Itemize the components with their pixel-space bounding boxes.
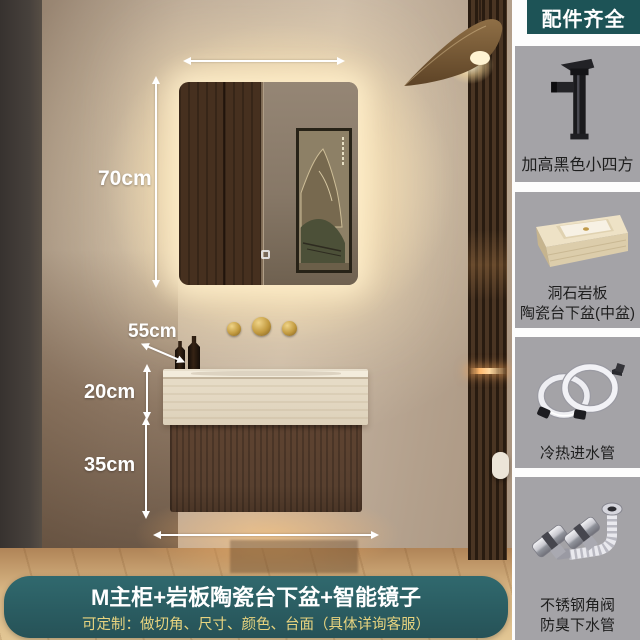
accessories-sidebar: 配件齐全 加高黑色小四方 <box>512 0 640 640</box>
black-faucet-icon <box>515 50 640 156</box>
accessory-label: 陶瓷台下盆(中盆) <box>520 304 635 324</box>
counter-height-arrow <box>146 371 148 413</box>
basin-edge <box>191 371 341 376</box>
accessory-label: 洞石岩板 <box>547 284 607 304</box>
accessory-label: 防臭下水管 <box>540 616 615 636</box>
mirror-height-arrow <box>155 83 157 281</box>
accessory-card-hoses: 冷热进水管 <box>515 337 640 468</box>
accessory-label: 加高黑色小四方 <box>521 156 633 177</box>
angle-valve-drain-icon <box>515 481 640 596</box>
wall-dark-edge <box>0 0 42 640</box>
customization-note: 可定制：做切角、尺寸、颜色、台面（具体详询客服） <box>82 613 430 634</box>
stone-countertop-basin <box>163 369 368 425</box>
accessory-card-basin: 洞石岩板 陶瓷台下盆(中盆) <box>515 192 640 328</box>
stone-basin-icon <box>515 196 640 284</box>
mirror-touch-sensor-icon <box>261 250 270 259</box>
dim-label-cabinet-height: 35cm <box>84 455 135 475</box>
accessory-card-faucet: 加高黑色小四方 <box>515 46 640 182</box>
accessory-card-drain: 不锈钢角阀 防臭下水管 <box>515 477 640 640</box>
faucet-handle-right-icon <box>282 321 297 336</box>
water-hoses-icon <box>515 341 640 444</box>
accessory-label: 不锈钢角阀 <box>540 596 615 616</box>
faucet-spout-icon <box>252 317 271 336</box>
rattan-pendant-lamp-icon <box>402 14 510 92</box>
width-arrow-bottom <box>160 534 372 536</box>
landscape-painting <box>296 128 352 273</box>
bathroom-scene: 70cm 55cm 20cm 35cm <box>0 0 512 640</box>
partition-warm-wash <box>468 230 507 300</box>
floor-shadow <box>230 540 358 573</box>
product-detail-image: 70cm 55cm 20cm 35cm M主柜+岩板陶瓷台下盆+智能镜子 可定制… <box>0 0 640 640</box>
partition-light-strip <box>468 368 507 374</box>
product-title: M主柜+岩板陶瓷台下盆+智能镜子 <box>91 580 421 612</box>
mirror-reflection-wood-panel <box>179 82 263 285</box>
cabinet-height-arrow <box>145 424 147 512</box>
walnut-cabinet <box>170 425 362 512</box>
width-arrow-top <box>190 60 338 62</box>
wood-plank-seam <box>223 82 225 285</box>
dim-label-mirror-height: 70cm <box>98 168 152 189</box>
dim-label-counter-height: 20cm <box>84 382 135 402</box>
towel <box>492 452 509 479</box>
faucet-handle-left-icon <box>227 322 241 336</box>
accessories-header: 配件齐全 <box>527 0 640 34</box>
led-mirror <box>179 82 358 285</box>
mountain-art-icon <box>299 131 349 270</box>
dim-label-counter-depth: 55cm <box>128 322 177 341</box>
countertop-edge-line <box>163 377 368 379</box>
accessory-label: 冷热进水管 <box>540 444 615 464</box>
product-title-banner: M主柜+岩板陶瓷台下盆+智能镜子 可定制：做切角、尺寸、颜色、台面（具体详询客服… <box>4 576 508 638</box>
